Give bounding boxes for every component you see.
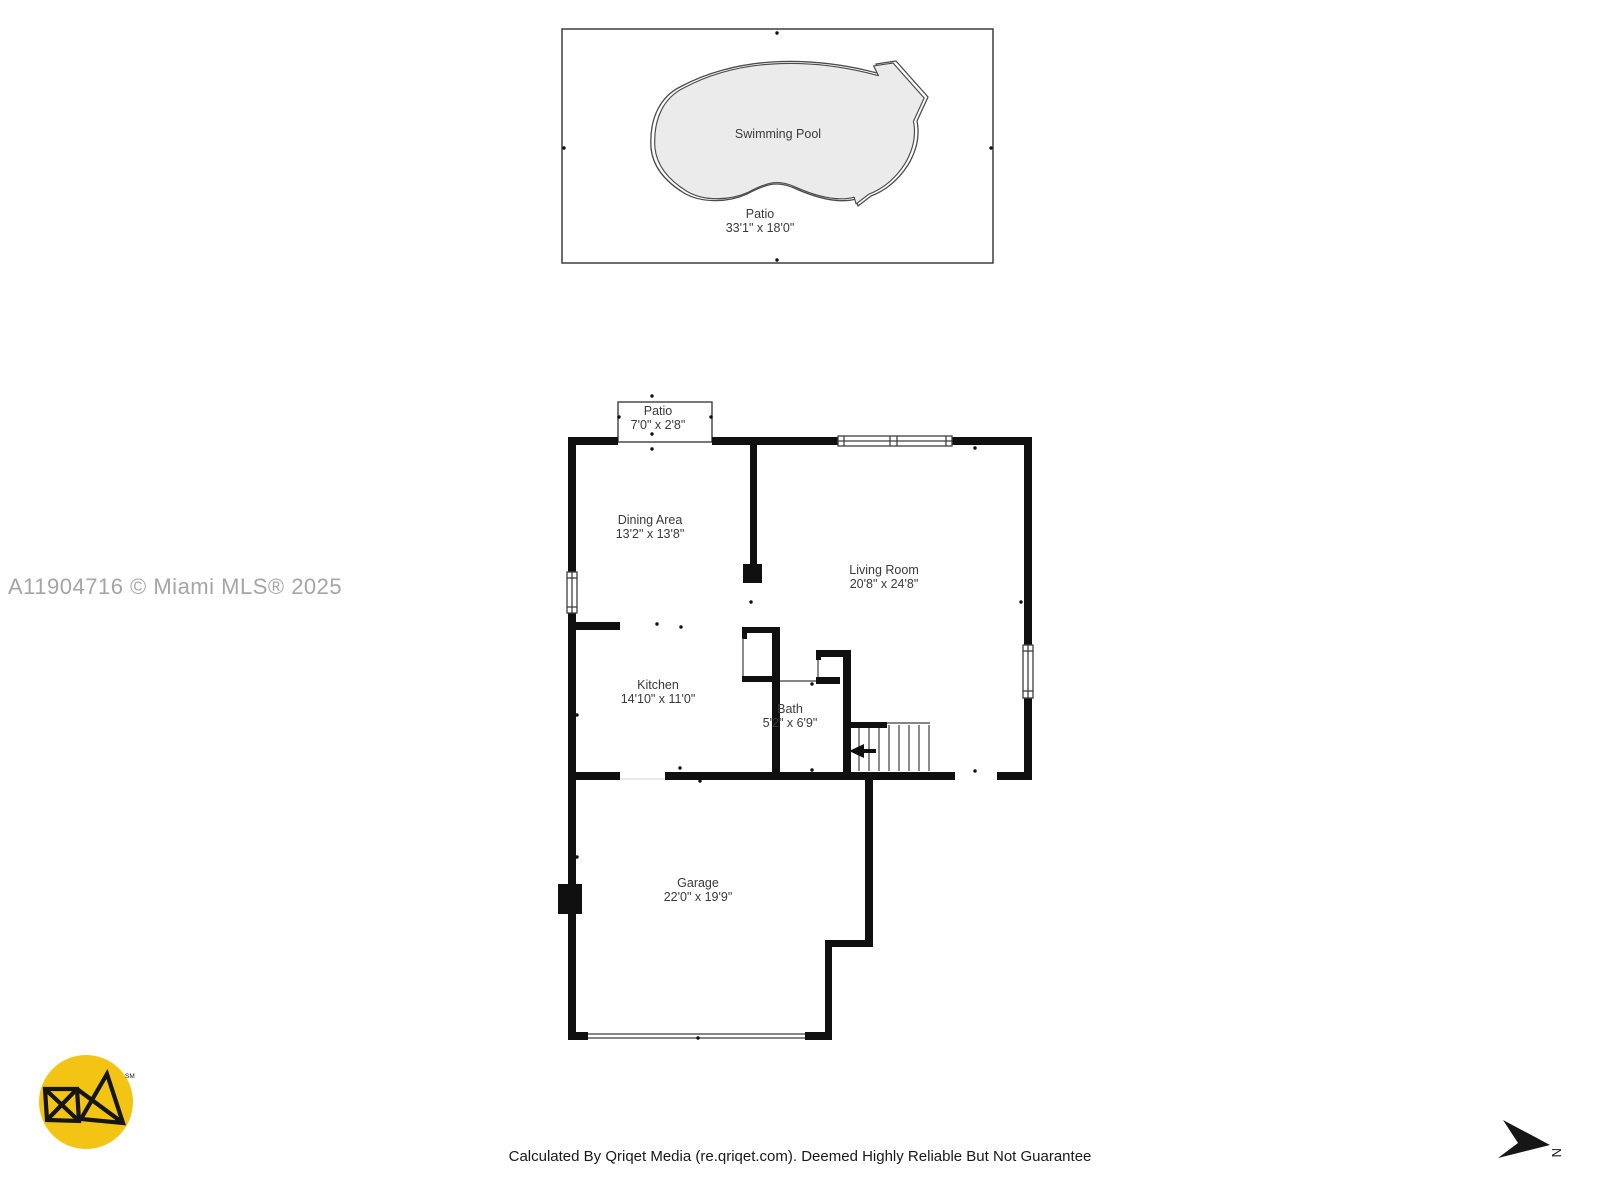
closet-left-stub [742, 627, 747, 639]
pool-patio-name: Patio [726, 207, 795, 221]
garage-bottom-right [805, 1032, 832, 1040]
closet-right-stub [816, 650, 821, 660]
bottom-wall-d [997, 772, 1032, 780]
room-name: Bath [763, 702, 818, 716]
garage-bottom-left [568, 1032, 588, 1040]
logo-circle [39, 1055, 133, 1149]
garage-right-wall [865, 780, 873, 947]
pool-patio-label: Patio 33'1" x 18'0" [726, 207, 795, 235]
pool-patio-dimensions: 33'1" x 18'0" [726, 221, 795, 235]
stairs-top-wall [851, 722, 887, 728]
room-label-dining-area: Dining Area 13'2" x 13'8" [616, 513, 685, 541]
dining-left-window [567, 572, 577, 613]
floor-plan-graphics [0, 0, 1600, 1200]
garage-entry-door-marker [558, 884, 582, 914]
room-dimensions: 5'2" x 6'9" [763, 716, 818, 730]
garage-step-wall-v [825, 947, 832, 1040]
garage-step-wall-h [825, 940, 873, 947]
north-arrow-icon: N [1470, 1105, 1580, 1167]
bath-right-wall [843, 650, 851, 772]
windows [567, 436, 1033, 698]
swimming-pool-label: Swimming Pool [735, 127, 821, 141]
north-label: N [1549, 1148, 1564, 1157]
room-name: Dining Area [616, 513, 685, 527]
right-wall-lower [1024, 698, 1032, 780]
stairs [849, 723, 930, 771]
closet-right-bottom [816, 677, 840, 684]
swimming-pool-label-text: Swimming Pool [735, 127, 821, 141]
disclaimer-text: Calculated By Qriqet Media (re.qriqet.co… [0, 1148, 1600, 1165]
closet-left-top [742, 627, 780, 633]
room-dimensions: 20'8" x 24'8" [849, 577, 918, 591]
top-wall-right [952, 437, 1032, 445]
room-dimensions: 22'0" x 19'9" [664, 890, 733, 904]
left-wall-mid [568, 613, 576, 772]
closet-left-bottom [742, 676, 776, 682]
room-label-kitchen: Kitchen 14'10" x 11'0" [621, 678, 696, 706]
room-dimensions: 14'10" x 11'0" [621, 692, 696, 706]
stairs-direction-arrow [849, 744, 876, 758]
room-label-patio: Patio 7'0" x 2'8" [631, 404, 686, 432]
mls-watermark: A11904716 © Miami MLS® 2025 [8, 574, 342, 600]
north-arrow-shape [1498, 1120, 1550, 1158]
room-label-bath: Bath 5'2" x 6'9" [763, 702, 818, 730]
room-name: Kitchen [621, 678, 696, 692]
kitchen-divider-wall [576, 622, 620, 630]
bottom-wall-b [665, 772, 848, 780]
bath-left-wall [772, 627, 780, 772]
room-label-living-room: Living Room 20'8" x 24'8" [849, 563, 918, 591]
right-wall-upper [1024, 437, 1032, 645]
living-room-right-window [1023, 645, 1033, 698]
room-name: Patio [631, 404, 686, 418]
top-wall-mid [712, 437, 838, 445]
wall-column [743, 564, 762, 583]
room-name: Garage [664, 876, 733, 890]
brand-logo-icon: SM [36, 1052, 136, 1152]
room-dimensions: 13'2" x 13'8" [616, 527, 685, 541]
bottom-wall-a [568, 772, 620, 780]
left-wall-upper [568, 437, 576, 572]
room-name: Living Room [849, 563, 918, 577]
room-dimensions: 7'0" x 2'8" [631, 418, 686, 432]
living-room-top-window [838, 436, 952, 446]
room-label-garage: Garage 22'0" x 19'9" [664, 876, 733, 904]
floor-plan-page: Swimming Pool Patio 33'1" x 18'0" Patio … [0, 0, 1600, 1200]
bottom-wall-c [848, 772, 955, 780]
dining-living-wall [750, 445, 757, 565]
logo-trademark: SM [125, 1073, 135, 1080]
